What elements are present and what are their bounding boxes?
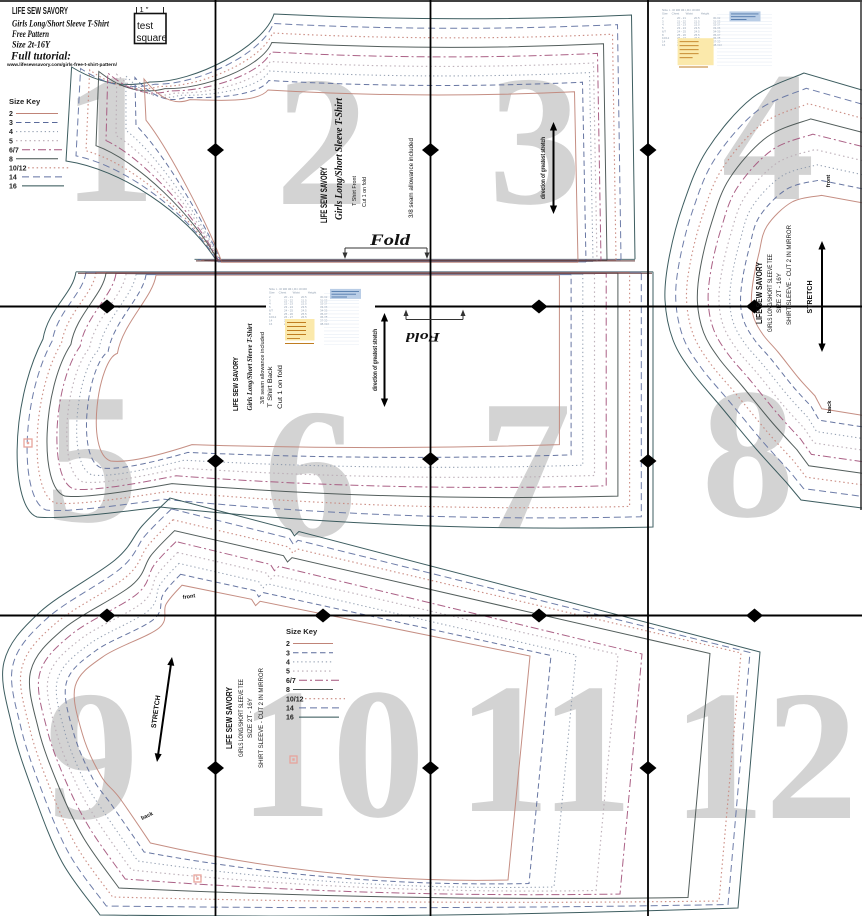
- svg-text:Girls Long/Short Sleeve T-Shir: Girls Long/Short Sleeve T-Shirt: [334, 97, 345, 220]
- svg-text:SHIRT SLEEVE - CUT 2 IN MIRROR: SHIRT SLEEVE - CUT 2 IN MIRROR: [786, 225, 793, 325]
- svg-text:1 ″: 1 ″: [140, 5, 149, 14]
- svg-text:16: 16: [9, 184, 17, 191]
- svg-text:10/12: 10/12: [9, 165, 27, 172]
- svg-text:3: 3: [9, 120, 13, 127]
- svg-text:3/8 seam allowance included: 3/8 seam allowance included: [409, 138, 415, 218]
- svg-text:Cut 1 on fold: Cut 1 on fold: [277, 364, 284, 409]
- svg-text:Size Key: Size Key: [286, 627, 318, 636]
- svg-text:Full tutorial:: Full tutorial:: [10, 51, 71, 63]
- svg-text:square: square: [137, 33, 168, 44]
- svg-text:Fold: Fold: [369, 232, 411, 249]
- svg-text:T Shirt Front: T Shirt Front: [352, 176, 358, 206]
- svg-text:10: 10: [239, 651, 425, 857]
- svg-text:5: 5: [9, 138, 13, 145]
- svg-text:back: back: [827, 400, 833, 413]
- svg-text:11: 11: [457, 646, 633, 852]
- svg-text:8: 8: [9, 156, 13, 163]
- svg-text:test: test: [137, 21, 153, 32]
- svg-text:front: front: [826, 175, 832, 188]
- svg-text:16: 16: [286, 715, 294, 722]
- svg-text:16: 16: [269, 322, 273, 326]
- svg-text:6/7: 6/7: [286, 678, 296, 685]
- svg-text:38-310: 38-310: [320, 322, 329, 326]
- svg-text:STRETCH: STRETCH: [807, 281, 814, 314]
- svg-text:Fold: Fold: [405, 330, 441, 345]
- svg-text:Size Key: Size Key: [9, 97, 41, 106]
- svg-text:6/7: 6/7: [9, 147, 19, 154]
- svg-text:direction of greatest stretch: direction of greatest stretch: [372, 329, 379, 391]
- svg-text:GIRLS LONG/SHORT SLEEVE TEE: GIRLS LONG/SHORT SLEEVE TEE: [768, 254, 774, 332]
- svg-text:www.lifesewsavory.com/girls-fr: www.lifesewsavory.com/girls-free-t-shirt…: [6, 62, 118, 67]
- svg-text:LIFE SEW SAVORY: LIFE SEW SAVORY: [225, 686, 234, 749]
- svg-text:LIFE SEW SAVORY: LIFE SEW SAVORY: [231, 357, 240, 411]
- svg-text:3: 3: [489, 38, 582, 244]
- svg-text:SIZE 2T - 16Y: SIZE 2T - 16Y: [777, 273, 783, 313]
- svg-text:4: 4: [9, 129, 13, 136]
- svg-text:2: 2: [9, 111, 13, 118]
- svg-text:Size 2t-16Y: Size 2t-16Y: [12, 40, 51, 50]
- svg-text:4: 4: [286, 660, 290, 667]
- svg-text:7: 7: [479, 363, 572, 569]
- svg-text:16: 16: [662, 43, 666, 47]
- svg-text:9: 9: [46, 653, 139, 859]
- svg-text:10/12: 10/12: [286, 696, 304, 703]
- svg-text:SIZE 2T - 16Y: SIZE 2T - 16Y: [248, 698, 254, 738]
- svg-text:LIFE SEW SAVORY: LIFE SEW SAVORY: [319, 167, 329, 223]
- svg-text:2: 2: [286, 641, 290, 648]
- svg-text:3/8 seam allowance included: 3/8 seam allowance included: [260, 332, 266, 404]
- svg-text:Girls Long/Short Sleeve T-Shir: Girls Long/Short Sleeve T-Shirt: [245, 323, 254, 411]
- svg-text:Girls Long/Short Sleeve T-Shir: Girls Long/Short Sleeve T-Shirt: [12, 19, 109, 29]
- svg-text:12: 12: [672, 653, 858, 859]
- svg-text:3: 3: [286, 650, 290, 657]
- svg-text:14: 14: [9, 174, 17, 181]
- svg-text:5: 5: [286, 669, 290, 676]
- svg-text:Cut 1 on fold: Cut 1 on fold: [362, 177, 368, 207]
- svg-text:LIFE SEW SAVORY: LIFE SEW SAVORY: [12, 6, 68, 17]
- svg-text:8: 8: [286, 687, 290, 694]
- svg-text:Size Chest Waist: Size Chest Waist Height: [662, 11, 709, 15]
- svg-text:8: 8: [702, 351, 795, 557]
- svg-text:GIRLS LONG/SHORT SLEEVE TEE: GIRLS LONG/SHORT SLEEVE TEE: [239, 679, 245, 757]
- svg-text:LIFE SEW SAVORY: LIFE SEW SAVORY: [755, 261, 764, 324]
- svg-text:T Shirt Back: T Shirt Back: [267, 365, 274, 407]
- svg-text:direction of greatest stretch: direction of greatest stretch: [540, 137, 547, 199]
- svg-text:Size Chest Waist: Size Chest Waist Height: [269, 290, 316, 294]
- svg-text:SHIRT SLEEVE - CUT 2 IN MIRROR: SHIRT SLEEVE - CUT 2 IN MIRROR: [258, 668, 265, 768]
- svg-text:Free Pattern: Free Pattern: [11, 29, 49, 39]
- svg-text:14: 14: [286, 706, 294, 713]
